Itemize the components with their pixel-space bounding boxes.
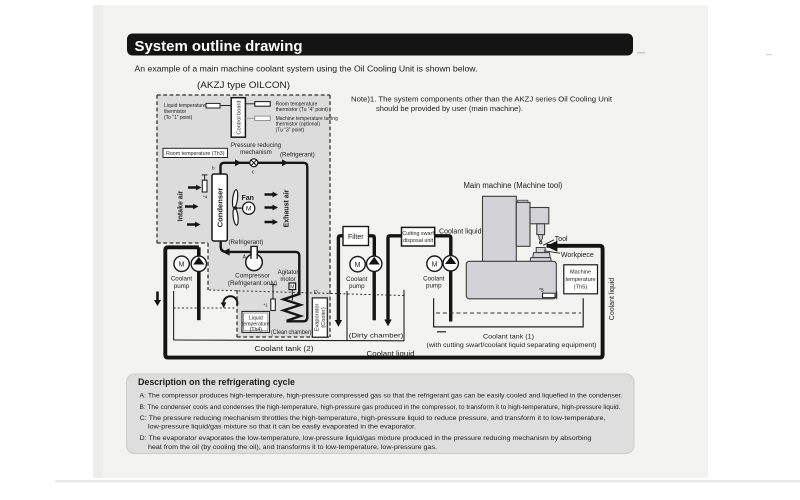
svg-text:Coolant: Coolant [423,275,445,282]
svg-text:Pressure reducing: Pressure reducing [231,142,282,149]
svg-text:A: The compressor produces hig: A: The compressor produces high-temperat… [140,393,623,400]
svg-text:Coolant tank (2): Coolant tank (2) [255,346,314,353]
svg-text:(Refrigerant only): (Refrigerant only) [228,280,277,287]
svg-text:Workpiece: Workpiece [561,252,594,259]
svg-text:Description on the refrigerati: Description on the refrigerating cycle [138,377,295,387]
svg-text:Fan: Fan [242,195,254,202]
svg-text:Coolant liquid: Coolant liquid [439,228,482,235]
svg-text:System outline drawing: System outline drawing [135,38,303,55]
svg-text:Note)1. The system components: Note)1. The system components other than… [351,95,612,104]
svg-text:Coolant: Coolant [171,276,193,283]
svg-text:low-pressure liquid/gas mixtur: low-pressure liquid/gas mixture so that … [148,424,416,431]
svg-text:Control board: Control board [237,101,243,135]
svg-text:(Th4): (Th4) [250,327,263,333]
svg-text:C: The pressure reducing mecha: C: The pressure reducing mechanism throt… [140,415,606,422]
svg-text:M: M [355,262,361,269]
svg-text:Intake air: Intake air [177,190,184,221]
svg-text:Agitator: Agitator [278,270,299,276]
svg-text:Machine: Machine [570,270,591,276]
svg-text:(To “1” point): (To “1” point) [164,115,193,121]
svg-text:motor: motor [280,277,295,283]
svg-text:D: The evaporator evaporates t: D: The evaporator evaporates the low-tem… [140,435,593,442]
svg-text:pump: pump [426,283,442,290]
svg-text:mechanism: mechanism [240,149,272,156]
svg-text:(Refrigerant): (Refrigerant) [229,239,264,246]
svg-text:B: The condenser cools and con: B: The condenser cools and condenses the… [140,404,621,411]
svg-text:(Cooler): (Cooler) [321,307,327,328]
svg-text:temperature: temperature [566,277,596,283]
svg-text:disposal unit: disposal unit [403,238,433,244]
svg-text:Coolant tank (1): Coolant tank (1) [483,334,534,341]
svg-text:pump: pump [349,283,365,290]
svg-text:Filter: Filter [348,234,364,241]
svg-text:Coolant liquid: Coolant liquid [609,278,616,321]
svg-text:An example of a main machine c: An example of a main machine coolant sys… [135,64,478,74]
svg-text:c: c [252,170,255,176]
svg-text:(Clean chamber): (Clean chamber) [271,329,312,336]
svg-text:*1: *1 [264,303,269,308]
svg-text:M: M [179,262,185,269]
svg-text:(Tu “3” point): (Tu “3” point) [276,127,305,133]
svg-text:Cutting swarf: Cutting swarf [402,231,434,237]
svg-text:(Dirty chamber): (Dirty chamber) [349,332,404,339]
svg-text:(AKZJ type OILCON): (AKZJ type OILCON) [197,80,290,91]
svg-text:(with cutting swarf/coolant li: (with cutting swarf/coolant liquid separ… [427,342,597,349]
svg-text:Coolant: Coolant [346,276,368,283]
svg-text:A: A [243,255,247,261]
svg-text:(Refrigerant): (Refrigerant) [280,151,315,158]
svg-text:heat from the oil (by cooling: heat from the oil (by cooling the oil), … [148,444,437,451]
svg-text:pump: pump [174,283,190,290]
svg-text:should be provided by user (ma: should be provided by user (main machine… [376,104,523,113]
svg-text:Coolant liquid: Coolant liquid [367,351,415,358]
svg-text:Main machine (Machine tool): Main machine (Machine tool) [464,181,563,190]
svg-text:Evaporator: Evaporator [315,303,321,331]
svg-text:M: M [432,262,438,269]
svg-text:Condenser: Condenser [215,188,224,228]
svg-text:(Th5): (Th5) [574,284,588,290]
svg-text:Room temperature (Th3): Room temperature (Th3) [166,151,225,157]
svg-text:thermistor (Tu “4” point): thermistor (Tu “4” point) [276,107,329,113]
svg-text:*4: *4 [203,195,208,200]
svg-text:Exhaust air: Exhaust air [284,189,291,227]
svg-text:Compressor: Compressor [235,272,271,279]
svg-text:M: M [246,206,252,213]
svg-text:D: D [314,290,318,296]
svg-text:b: b [212,166,215,172]
svg-text:Tool: Tool [555,236,568,243]
